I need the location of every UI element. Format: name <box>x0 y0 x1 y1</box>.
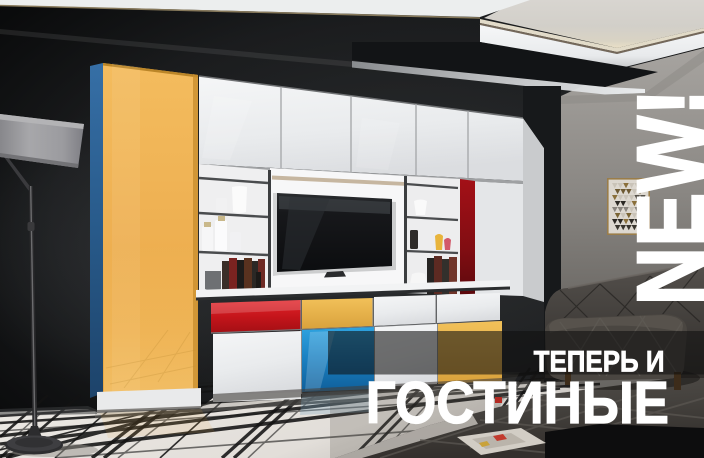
svg-text:ГОСТИНЫЕ: ГОСТИНЫЕ <box>366 369 669 436</box>
svg-text:NEW!: NEW! <box>617 89 704 306</box>
